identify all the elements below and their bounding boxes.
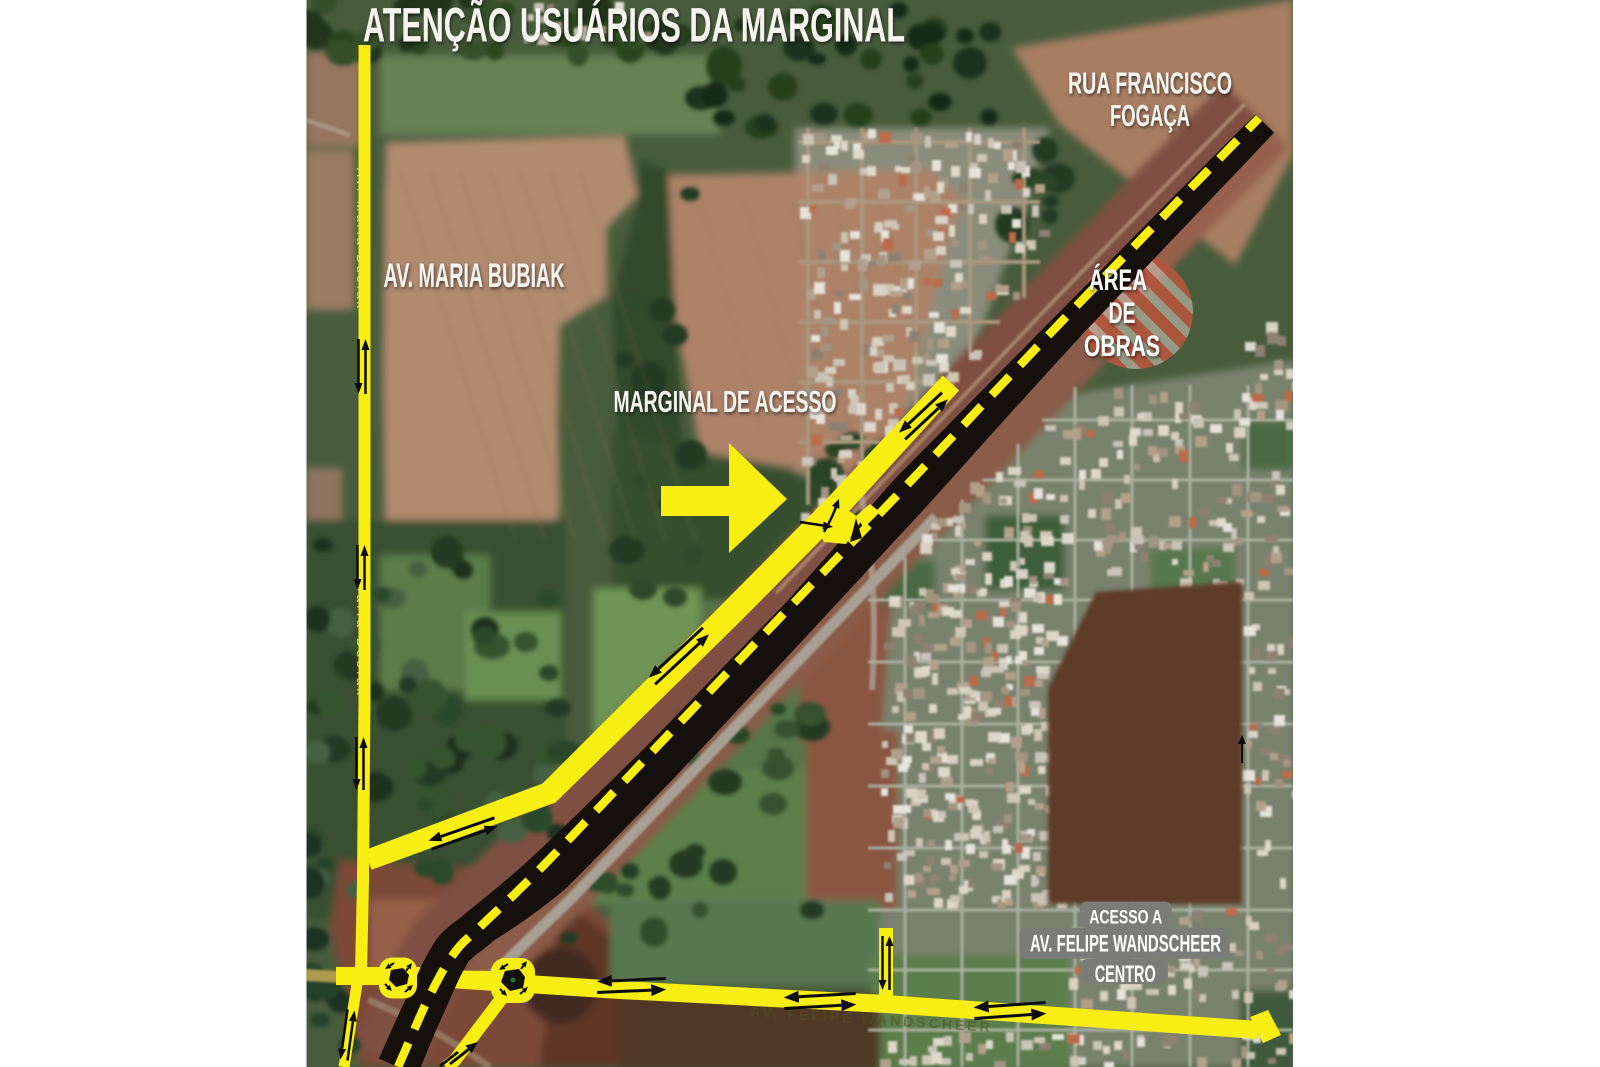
svg-text:MARGINAL DE ACESSO: MARGINAL DE ACESSO <box>614 384 837 419</box>
svg-text:ATENÇÃO USUÁRIOS DA MARGINAL: ATENÇÃO USUÁRIOS DA MARGINAL <box>363 0 905 53</box>
svg-text:DE: DE <box>1109 297 1136 330</box>
svg-text:OBRAS: OBRAS <box>1084 330 1160 363</box>
svg-text:RUA FRANCISCO: RUA FRANCISCO <box>1068 66 1232 101</box>
svg-text:ÁREA: ÁREA <box>1089 263 1147 297</box>
svg-text:AV. FELIPE WANDSCHEER: AV. FELIPE WANDSCHEER <box>1030 931 1221 958</box>
svg-text:ACESSO A: ACESSO A <box>1089 908 1162 929</box>
svg-text:CENTRO: CENTRO <box>1095 961 1156 988</box>
svg-text:FOGAÇA: FOGAÇA <box>1110 98 1190 133</box>
svg-text:AV. MARIA BUBIAK: AV. MARIA BUBIAK <box>384 257 565 295</box>
